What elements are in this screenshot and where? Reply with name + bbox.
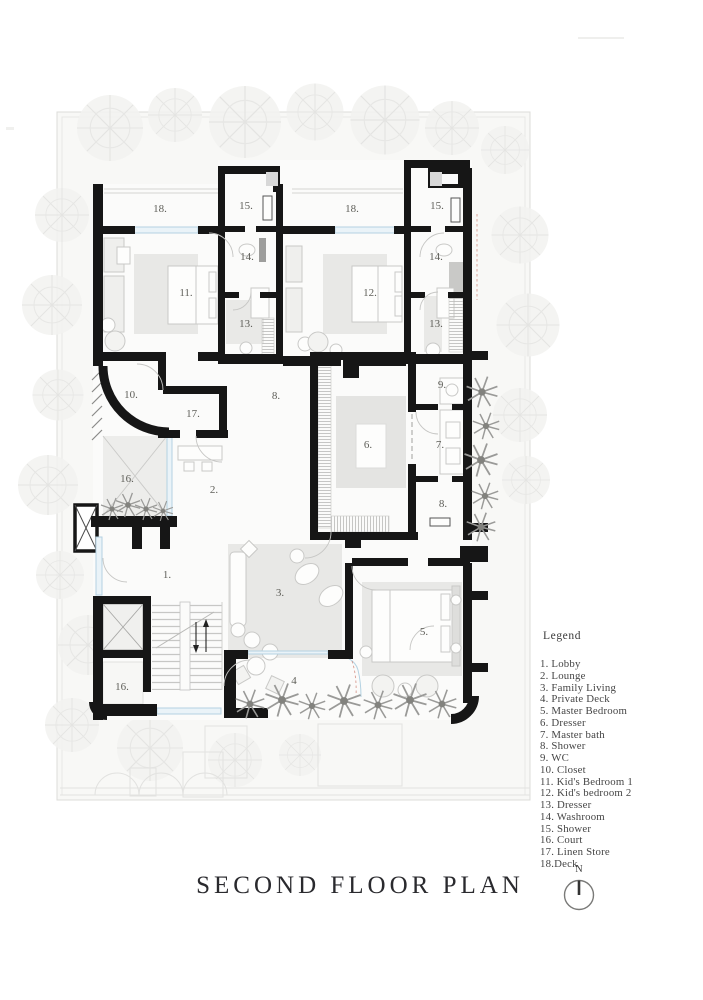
room-label-family-living: 3.: [276, 587, 285, 599]
north-indicator: N: [556, 864, 602, 917]
legend-item: 9. WC: [540, 753, 702, 765]
north-arrow-icon: [556, 874, 602, 912]
legend-items: 1. Lobby 2. Lounge 3. Family Living 4. P…: [540, 659, 702, 871]
room-label-deck-left: 18.: [153, 203, 167, 215]
room-label-dresser-left: 13.: [239, 318, 253, 330]
room-label-court-mid: 16.: [120, 473, 134, 485]
room-label-dresser-right: 13.: [429, 318, 443, 330]
room-label-wc: 9.: [438, 379, 447, 391]
legend: Legend 1. Lobby 2. Lounge 3. Family Livi…: [540, 630, 702, 871]
plan-title: SECOND FLOOR PLAN: [160, 872, 560, 900]
drawing-sheet: 18. 18. 15. 15. 14. 14. 13. 13. 11. 12. …: [0, 0, 703, 1000]
room-label-private-deck: 4: [291, 675, 297, 687]
room-label-closet: 10.: [124, 389, 138, 401]
legend-item: 2. Lounge: [540, 671, 702, 683]
room-label-lobby: 1.: [163, 569, 172, 581]
legend-item: 6. Dresser: [540, 718, 702, 730]
room-label-washroom-left: 14.: [240, 251, 254, 263]
elevator-shaft: [103, 604, 143, 650]
legend-item: 1. Lobby: [540, 659, 702, 671]
legend-item: 17. Linen Store: [540, 847, 702, 859]
room-label-dresser-master: 6.: [364, 439, 373, 451]
room-label-deck-right: 18.: [345, 203, 359, 215]
room-label-shower-right: 15.: [430, 200, 444, 212]
legend-item: 10. Closet: [540, 765, 702, 777]
shaft-box: [75, 505, 97, 551]
room-label-lounge: 2.: [210, 484, 219, 496]
legend-item: 5. Master Bedroom: [540, 706, 702, 718]
room-label-washroom-right: 14.: [429, 251, 443, 263]
room-label-kids-bedroom-2: 12.: [363, 287, 377, 299]
room-label-master-bath: 7.: [436, 439, 445, 451]
room-label-linen-store: 17.: [186, 408, 200, 420]
room-label-corridor: 8.: [272, 390, 281, 402]
room-label-shower-left: 15.: [239, 200, 253, 212]
room-label-shower-master: 8.: [439, 498, 448, 510]
room-label-court-bottom: 16.: [115, 681, 129, 693]
staircase: [152, 602, 222, 690]
legend-title: Legend: [540, 630, 702, 642]
legend-item: 14. Washroom: [540, 812, 702, 824]
legend-item: 13. Dresser: [540, 800, 702, 812]
room-label-kids-bedroom-1: 11.: [179, 287, 193, 299]
room-label-master-bedroom: 5.: [420, 626, 429, 638]
